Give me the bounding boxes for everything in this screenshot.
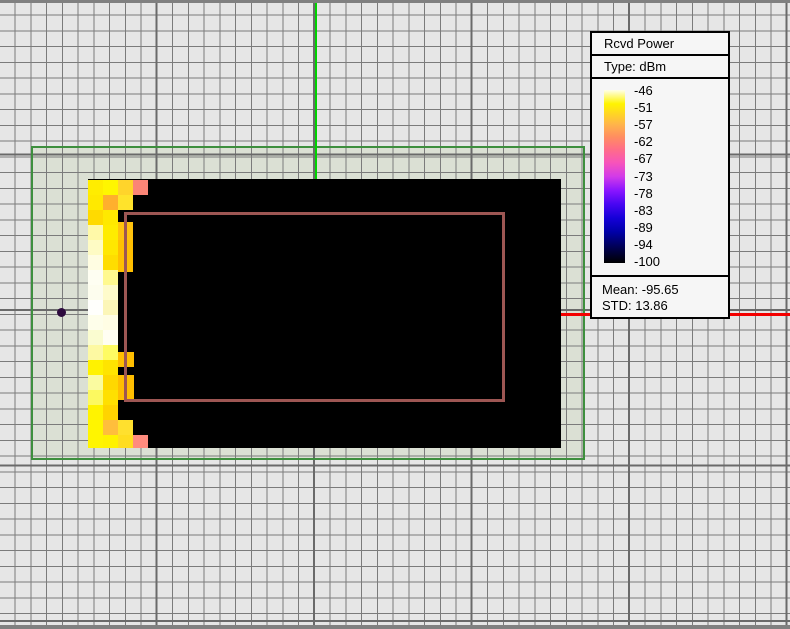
colorbar-tick-label: -67	[634, 151, 653, 167]
heatmap-cell	[118, 180, 133, 195]
colorbar-tick-label: -57	[634, 117, 653, 133]
heatmap-cell	[88, 225, 103, 240]
legend-panel[interactable]: Rcvd Power Type: dBm -46-51-57-62-67-73-…	[590, 31, 730, 319]
colorbar-tick-label: -78	[634, 186, 653, 202]
heatmap-cell	[88, 210, 103, 225]
colorbar-tick-label: -94	[634, 237, 653, 253]
colorbar-tick-label: -89	[634, 220, 653, 236]
legend-title: Rcvd Power	[592, 33, 728, 56]
heatmap-cell	[88, 300, 103, 315]
heatmap-cell	[88, 285, 103, 300]
heatmap-cell	[88, 240, 103, 255]
heatmap-cell	[118, 420, 133, 435]
heatmap-cell	[133, 435, 148, 448]
heatmap-cell	[103, 180, 118, 195]
colorbar-tick-label: -73	[634, 169, 653, 185]
heatmap-cell	[118, 195, 133, 210]
window-bottom-edge	[0, 625, 790, 629]
heatmap-cell	[103, 360, 118, 375]
heatmap-cell	[103, 225, 118, 240]
heatmap-cell	[103, 240, 118, 255]
heatmap-cell	[88, 195, 103, 210]
colorbar-tick-label: -46	[634, 83, 653, 99]
heatmap-cell	[103, 315, 118, 330]
window-top-edge	[0, 0, 790, 3]
heatmap-cell	[88, 255, 103, 270]
heatmap-cell	[103, 270, 118, 285]
simulation-canvas[interactable]: Rcvd Power Type: dBm -46-51-57-62-67-73-…	[0, 0, 790, 629]
building-outline	[124, 212, 505, 402]
transmitter-point[interactable]	[57, 308, 66, 317]
heatmap-cell	[118, 435, 133, 448]
y-axis-line	[315, 2, 317, 180]
heatmap-cell	[103, 285, 118, 300]
heatmap-cell	[103, 300, 118, 315]
legend-scale-section: -46-51-57-62-67-73-78-83-89-94-100	[592, 79, 728, 275]
heatmap-cell	[88, 435, 103, 448]
heatmap-cell	[103, 195, 118, 210]
heatmap-cell	[103, 375, 118, 390]
heatmap-cell	[103, 420, 118, 435]
heatmap-cell	[88, 270, 103, 285]
heatmap-cell	[88, 360, 103, 375]
legend-type-label: Type: dBm	[592, 56, 728, 79]
heatmap-cell	[103, 405, 118, 420]
heatmap-cell	[88, 420, 103, 435]
colorbar-gradient	[604, 90, 625, 263]
heatmap-cell	[88, 180, 103, 195]
heatmap-cell	[103, 345, 118, 360]
colorbar-tick-label: -62	[634, 134, 653, 150]
heatmap-cell	[133, 180, 148, 195]
heatmap-cell	[103, 255, 118, 270]
heatmap-cell	[103, 330, 118, 345]
heatmap-cell	[88, 405, 103, 420]
heatmap-cell	[103, 390, 118, 405]
heatmap-cell	[88, 375, 103, 390]
std-value: STD: 13.86	[602, 298, 728, 314]
heatmap-cell	[88, 390, 103, 405]
colorbar-tick-label: -100	[634, 254, 660, 270]
heatmap-cell	[88, 330, 103, 345]
heatmap-cell	[103, 435, 118, 448]
colorbar-tick-label: -83	[634, 203, 653, 219]
colorbar-tick-label: -51	[634, 100, 653, 116]
heatmap-cell	[103, 210, 118, 225]
heatmap-cell	[88, 345, 103, 360]
mean-value: Mean: -95.65	[602, 282, 728, 298]
legend-stats-section: Mean: -95.65 STD: 13.86	[592, 275, 728, 317]
heatmap-cell	[88, 315, 103, 330]
